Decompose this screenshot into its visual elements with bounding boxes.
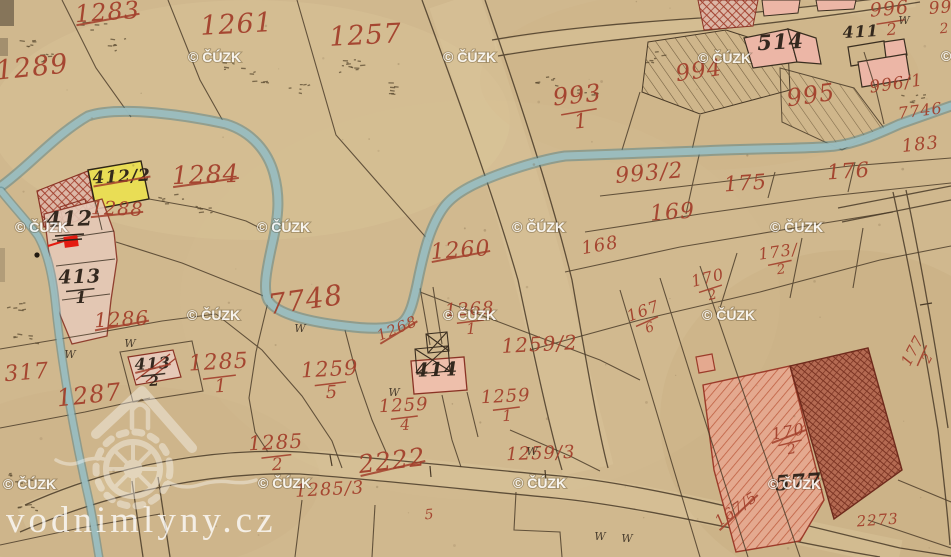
svg-text:1288: 1288 <box>91 197 144 221</box>
svg-text:993: 993 <box>551 79 602 112</box>
svg-text:1285: 1285 <box>188 348 249 376</box>
cuzk-watermark: © ČÚZK <box>257 218 310 235</box>
top-edge-building-b <box>816 0 856 11</box>
svg-text:2: 2 <box>270 455 284 476</box>
meadow-symbol: W <box>64 348 77 361</box>
cuzk-watermark: © ČÚZK <box>15 218 68 235</box>
cuzk-watermark: © ČÚZK <box>698 49 751 66</box>
parcel-label: 2 <box>938 21 950 38</box>
svg-text:4: 4 <box>399 416 412 435</box>
svg-text:1: 1 <box>502 407 514 426</box>
meadow-symbol: W <box>124 337 137 350</box>
cuzk-watermark: © ČÚZK <box>258 474 311 491</box>
cuzk-watermark: © ČÚZK <box>513 474 566 491</box>
cuzk-watermark: © ČÚZK <box>768 475 821 492</box>
cuzk-watermark: © ČÚZK <box>443 48 496 65</box>
parcel-label: 1260 <box>430 236 492 265</box>
cuzk-watermark: © ČÚZK <box>443 306 496 323</box>
svg-text:1261: 1261 <box>199 7 273 42</box>
svg-text:2273: 2273 <box>855 510 899 531</box>
parcel-label: 169 <box>649 198 696 226</box>
parcel-label: 1286 <box>94 306 150 333</box>
cuzk-watermark: © ČÚZK <box>188 48 241 65</box>
survey-point-dot <box>34 252 39 257</box>
svg-text:5: 5 <box>325 382 338 404</box>
parcel-label: 1259/2 <box>501 330 579 358</box>
parcel-label: 1261 <box>199 7 273 42</box>
meadow-symbol: W <box>898 14 911 27</box>
svg-text:183: 183 <box>901 132 940 157</box>
top-edge-building-a <box>762 0 800 16</box>
cuzk-watermark: © ČÚZK <box>512 218 565 235</box>
parcel-label: 183 <box>901 132 940 157</box>
svg-text:1259: 1259 <box>480 385 531 409</box>
parcel-label: 99 <box>928 0 951 19</box>
svg-text:175: 175 <box>723 170 768 197</box>
meadow-symbol: W <box>526 445 539 458</box>
svg-text:176: 176 <box>826 158 871 185</box>
parcel-label: 414 <box>415 358 458 381</box>
parcel-label: 2273 <box>855 510 899 531</box>
svg-text:169: 169 <box>649 198 696 226</box>
svg-text:514: 514 <box>757 28 805 55</box>
svg-text:99: 99 <box>928 0 951 19</box>
svg-text:1: 1 <box>214 376 228 398</box>
svg-text:2: 2 <box>775 261 788 278</box>
cuzk-watermark: © ČÚZK <box>187 306 240 323</box>
parcel-label: 411 <box>842 21 879 42</box>
svg-text:2: 2 <box>148 373 160 390</box>
parcel-label: 1283 <box>74 0 141 28</box>
cuzk-watermark: © ČÚZK <box>770 218 823 235</box>
parcel-label: 1257 <box>328 18 402 53</box>
meadow-symbol: W <box>594 530 607 543</box>
svg-text:2: 2 <box>885 19 899 39</box>
svg-text:1: 1 <box>573 108 589 133</box>
svg-text:1259: 1259 <box>300 356 359 383</box>
building-577-shed <box>696 354 715 373</box>
meadow-symbol: W <box>621 532 634 545</box>
cuzk-watermark: © ČÚZK <box>941 47 951 64</box>
cuzk-watermark: © ČÚZK <box>3 475 56 492</box>
parcel-label: 5 <box>424 507 435 524</box>
parcel-label: 1284 <box>171 159 240 190</box>
svg-text:1259/3: 1259/3 <box>506 442 576 465</box>
svg-text:1285: 1285 <box>248 429 304 456</box>
parcel-label: 175 <box>723 170 768 197</box>
top-edge-hatched-building <box>698 0 758 30</box>
meadow-symbol: W <box>294 322 307 335</box>
svg-text:2: 2 <box>938 21 950 38</box>
svg-text:1259: 1259 <box>378 394 429 418</box>
parcel-label: 514 <box>757 28 805 55</box>
parcel-label: 1288 <box>91 197 144 221</box>
parcel-label: 412/2 <box>92 165 151 188</box>
svg-text:1257: 1257 <box>328 18 402 53</box>
cuzk-watermark: © ČÚZK <box>702 306 755 323</box>
site-watermark: vodnimlyny.cz <box>6 500 277 541</box>
svg-text:414: 414 <box>415 358 458 381</box>
map-canvas[interactable]: 128312611257128912841288412/241241314132… <box>0 0 951 557</box>
cadastral-map-viewer: 128312611257128912841288412/241241314132… <box>0 0 951 557</box>
meadow-symbol: W <box>388 386 401 399</box>
parcel-label: 1259/3 <box>506 442 576 465</box>
mill-highlight-marker <box>63 235 78 248</box>
svg-text:1: 1 <box>75 288 88 307</box>
svg-text:413: 413 <box>58 265 101 288</box>
svg-text:411: 411 <box>842 21 879 42</box>
svg-text:5: 5 <box>424 507 435 524</box>
svg-text:1259/2: 1259/2 <box>501 330 579 358</box>
parcel-label: 176 <box>826 158 871 185</box>
